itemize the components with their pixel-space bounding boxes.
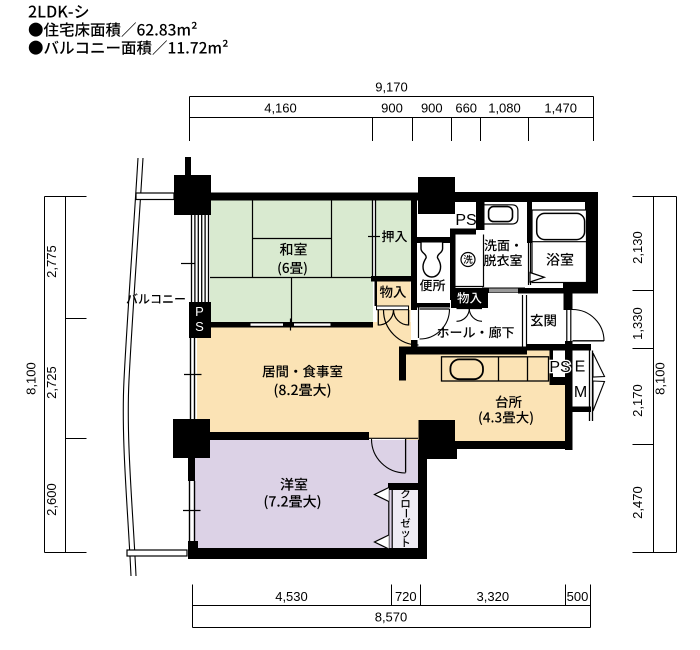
svg-text:2,170: 2,170 [630,384,645,417]
svg-text:3,320: 3,320 [477,589,510,604]
svg-text:720: 720 [395,589,417,604]
svg-text:S: S [195,319,204,334]
svg-text:2,130: 2,130 [630,231,645,264]
svg-text:900: 900 [381,101,403,116]
svg-text:M: M [574,384,587,401]
svg-text:9,170: 9,170 [375,80,408,95]
svg-text:8,570: 8,570 [375,610,408,625]
svg-text:2,775: 2,775 [44,245,59,278]
svg-text:PS: PS [549,359,570,376]
svg-text:900: 900 [421,101,443,116]
svg-text:2,725: 2,725 [44,366,59,399]
svg-text:2,470: 2,470 [630,486,645,519]
svg-text:PS: PS [455,212,476,229]
svg-text:E: E [575,359,586,376]
svg-text:1,080: 1,080 [488,101,521,116]
svg-text:660: 660 [455,101,477,116]
svg-text:4,530: 4,530 [275,589,308,604]
svg-text:8,100: 8,100 [24,362,39,395]
svg-text:2,600: 2,600 [44,483,59,516]
svg-text:8,100: 8,100 [653,362,668,395]
svg-text:1,330: 1,330 [630,307,645,340]
svg-text:1,470: 1,470 [544,101,577,116]
svg-text:4,160: 4,160 [264,101,297,116]
svg-text:P: P [195,304,204,319]
svg-text:500: 500 [567,589,589,604]
